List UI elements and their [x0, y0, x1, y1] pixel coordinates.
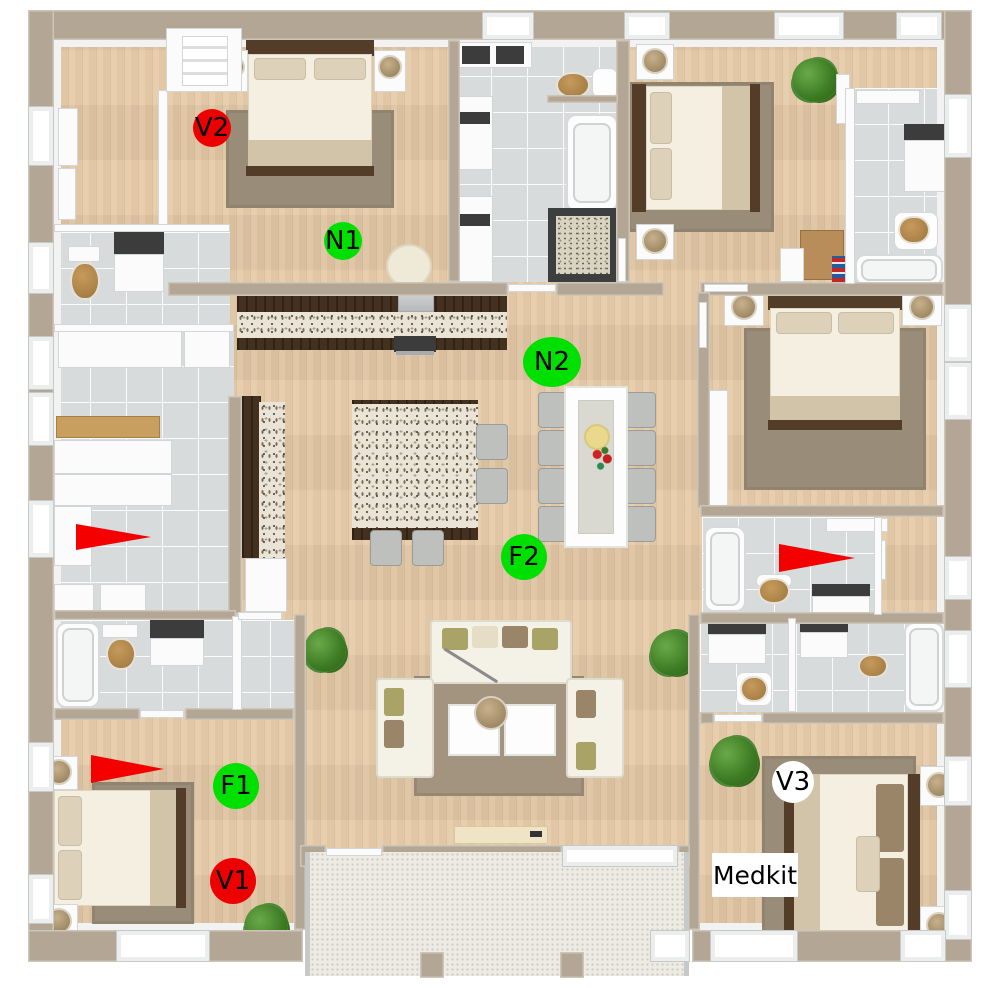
marker-v1[interactable]: V1	[210, 858, 256, 904]
annotation-overlay: V2N1N2F2F1V1V3Medkit	[0, 0, 1000, 988]
arrow-bath-right[interactable]	[779, 544, 855, 572]
marker-f2[interactable]: F2	[501, 534, 547, 580]
marker-v3[interactable]: V3	[772, 761, 814, 803]
marker-n2[interactable]: N2	[523, 337, 581, 387]
arrow-bedroom-bl[interactable]	[91, 755, 164, 783]
arrow-utility[interactable]	[76, 524, 151, 550]
marker-v2[interactable]: V2	[193, 109, 231, 147]
floor-plan: V2N1N2F2F1V1V3Medkit	[0, 0, 1000, 988]
marker-n1[interactable]: N1	[324, 222, 362, 260]
marker-f1[interactable]: F1	[213, 763, 259, 809]
label-medkit[interactable]: Medkit	[712, 853, 798, 897]
